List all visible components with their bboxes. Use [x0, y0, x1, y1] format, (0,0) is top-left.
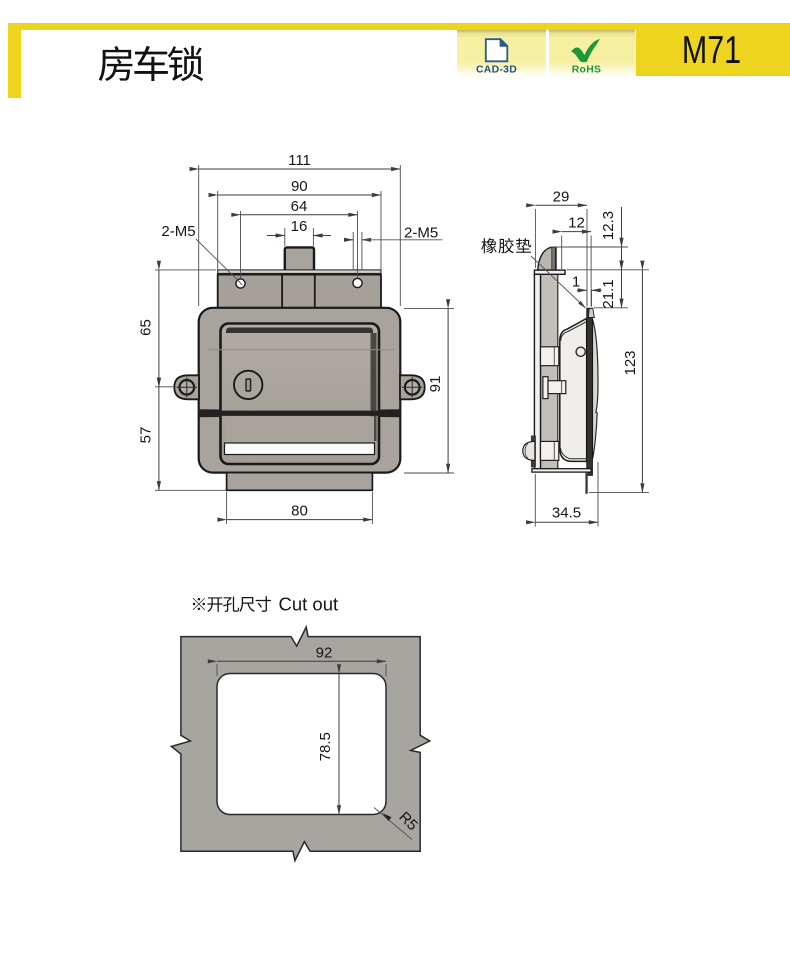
svg-text:64: 64: [291, 198, 308, 215]
svg-text:12.3: 12.3: [600, 211, 617, 240]
svg-text:2-M5: 2-M5: [404, 225, 438, 242]
svg-text:21.1: 21.1: [600, 279, 617, 308]
svg-text:Cut out: Cut out: [279, 594, 339, 615]
svg-text:123: 123: [622, 350, 639, 375]
svg-text:57: 57: [138, 427, 155, 444]
svg-text:91: 91: [427, 376, 444, 393]
svg-text:90: 90: [291, 178, 308, 195]
svg-text:65: 65: [138, 319, 155, 336]
svg-text:1: 1: [572, 274, 580, 291]
svg-text:80: 80: [291, 503, 308, 520]
svg-text:16: 16: [291, 218, 308, 235]
svg-text:111: 111: [288, 152, 311, 169]
svg-text:78.5: 78.5: [317, 732, 334, 761]
svg-text:29: 29: [553, 189, 570, 206]
svg-text:92: 92: [316, 645, 333, 662]
svg-text:12: 12: [568, 215, 585, 232]
svg-text:34.5: 34.5: [552, 505, 581, 522]
svg-text:2-M5: 2-M5: [161, 223, 195, 240]
